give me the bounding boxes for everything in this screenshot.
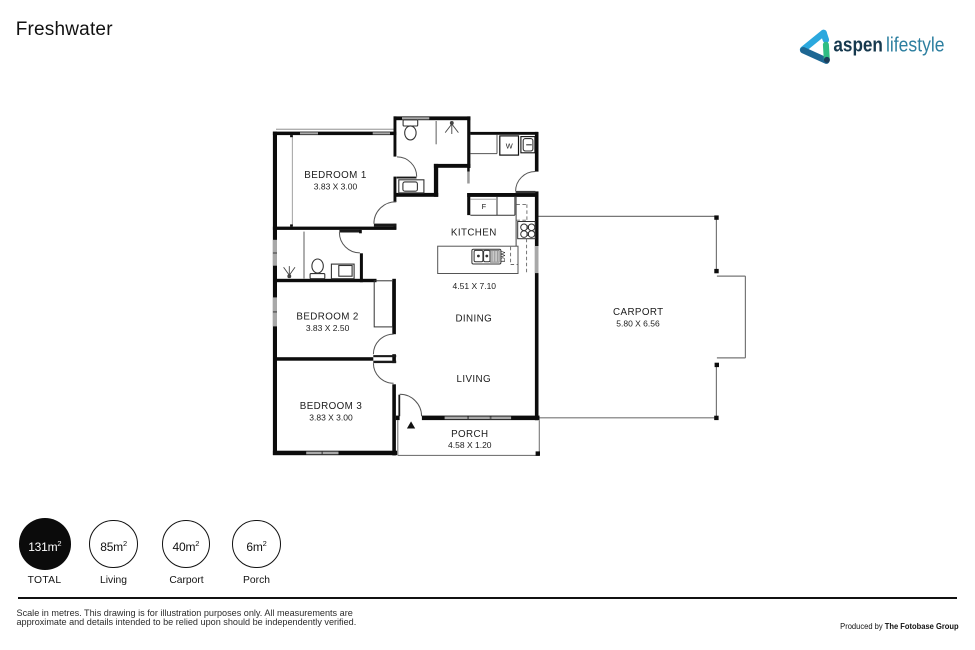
svg-text:3.83 X 3.00: 3.83 X 3.00 xyxy=(309,412,353,422)
svg-text:PORCH: PORCH xyxy=(451,429,488,440)
svg-text:LIVING: LIVING xyxy=(457,374,492,385)
svg-text:4.51 X 7.10: 4.51 X 7.10 xyxy=(453,281,497,291)
svg-text:3.83 X 3.00: 3.83 X 3.00 xyxy=(314,182,358,192)
svg-text:KITCHEN: KITCHEN xyxy=(451,227,497,238)
svg-text:W: W xyxy=(506,141,513,150)
svg-text:5.80 X 6.56: 5.80 X 6.56 xyxy=(616,319,660,329)
svg-text:CARPORT: CARPORT xyxy=(613,307,664,318)
svg-text:BEDROOM 2: BEDROOM 2 xyxy=(296,312,358,323)
svg-text:BEDROOM 1: BEDROOM 1 xyxy=(304,170,366,181)
svg-text:DINING: DINING xyxy=(455,313,492,324)
svg-text:F: F xyxy=(482,202,487,211)
svg-text:3.83 X 2.50: 3.83 X 2.50 xyxy=(306,323,350,333)
svg-text:BEDROOM 3: BEDROOM 3 xyxy=(300,401,363,412)
svg-text:DW: DW xyxy=(500,250,507,262)
svg-text:4.58 X 1.20: 4.58 X 1.20 xyxy=(448,440,492,450)
